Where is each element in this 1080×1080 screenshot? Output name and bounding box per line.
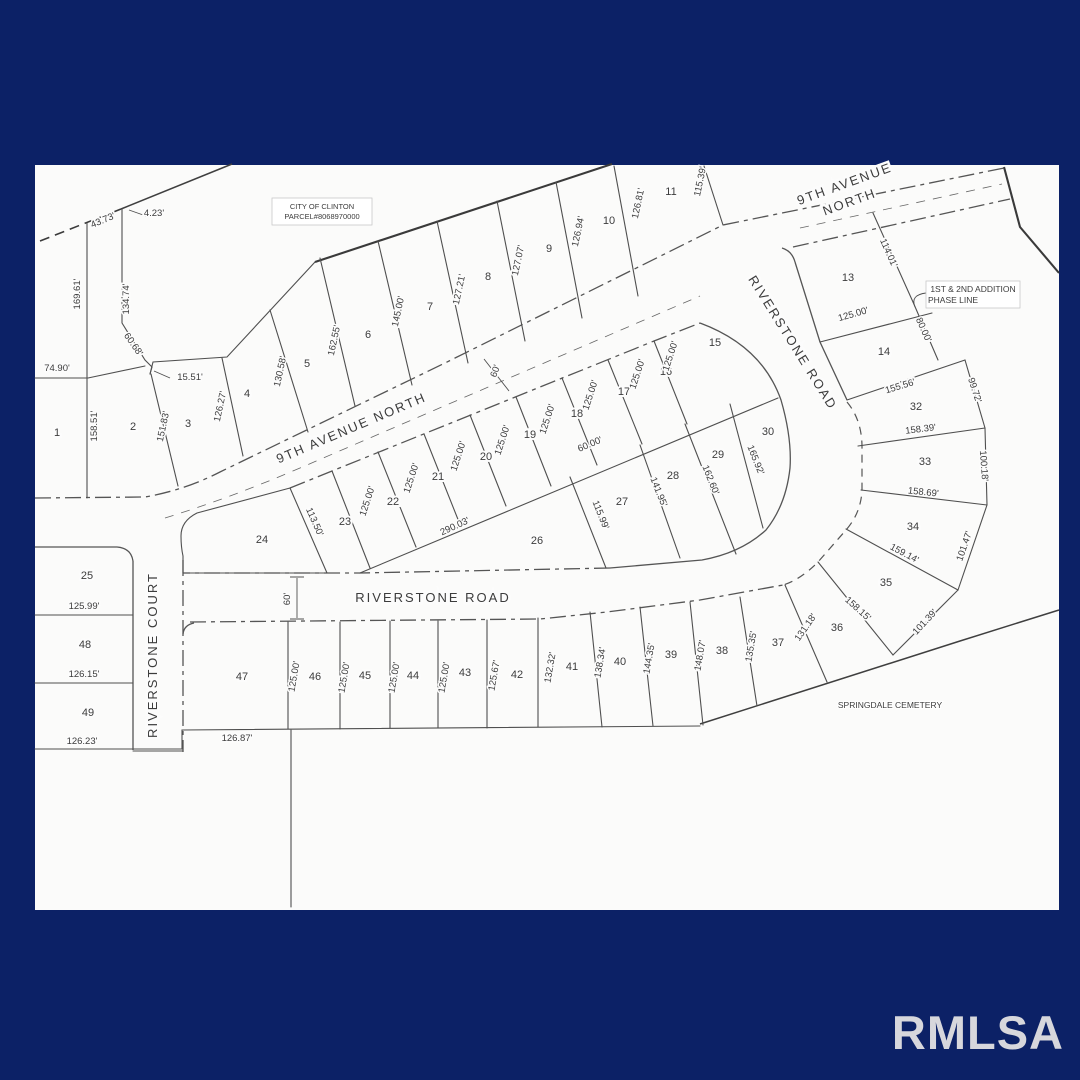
- lot-number-label: 10: [603, 215, 615, 227]
- dimension-label: 169.61': [72, 278, 83, 309]
- street-name-label: RIVERSTONE ROAD: [355, 590, 510, 605]
- lot-number-label: 37: [772, 637, 784, 649]
- lot-number-label: 32: [910, 401, 922, 413]
- screenshot-stage: 9TH AVENUE NORTH9TH AVENUENORTHRIVERSTON…: [0, 0, 1080, 1080]
- lot-number-label: 24: [256, 534, 268, 546]
- dimension-label: 60': [282, 593, 293, 606]
- lot-number-label: 43: [459, 667, 471, 679]
- dimension-label: 15.51': [177, 372, 203, 383]
- lot-number-label: 13: [842, 272, 854, 284]
- lot-number-label: 33: [919, 456, 931, 468]
- lot-number-label: 41: [566, 661, 578, 673]
- dimension-label: 74.90': [44, 363, 70, 374]
- dimension-label: 100.18': [977, 450, 990, 482]
- lot-number-label: 34: [907, 521, 919, 533]
- lot-number-label: 20: [480, 451, 492, 463]
- lot-number-label: 45: [359, 670, 371, 682]
- lot-number-label: 19: [524, 429, 536, 441]
- lot-number-label: 29: [712, 449, 724, 461]
- lot-number-label: 11: [665, 186, 676, 198]
- lot-number-label: 8: [485, 271, 491, 283]
- lot-number-label: 22: [387, 496, 399, 508]
- lot-number-label: 21: [432, 471, 444, 483]
- lot-number-label: 4: [244, 388, 250, 400]
- lot-number-label: 18: [571, 408, 583, 420]
- lot-number-label: 42: [511, 669, 523, 681]
- lot-number-label: 3: [185, 418, 191, 430]
- lot-number-label: 15: [709, 337, 721, 349]
- lot-number-label: 40: [614, 656, 626, 668]
- lot-number-label: 14: [878, 346, 890, 358]
- map-note-label: SPRINGDALE CEMETERY: [838, 700, 943, 710]
- lot-number-label: 5: [304, 358, 310, 370]
- lot-number-label: 30: [762, 426, 774, 438]
- dimension-label: 134.74': [121, 283, 132, 314]
- plat-svg: 9TH AVENUE NORTH9TH AVENUENORTHRIVERSTON…: [0, 0, 1080, 1080]
- lot-number-label: 49: [82, 707, 94, 719]
- map-note-label: PARCEL#8068970000: [284, 212, 359, 221]
- lot-number-label: 26: [531, 535, 543, 547]
- lot-number-label: 35: [880, 577, 892, 589]
- lot-number-label: 39: [665, 649, 677, 661]
- dimension-label: 158.51': [89, 410, 100, 441]
- street-name-label: RIVERSTONE COURT: [145, 572, 160, 738]
- map-note-label: CITY OF CLINTON: [290, 202, 354, 211]
- lot-number-label: 48: [79, 639, 91, 651]
- lot-number-label: 44: [407, 670, 419, 682]
- lot-number-label: 6: [365, 329, 371, 341]
- lot-number-label: 9: [546, 243, 552, 255]
- lot-number-label: 27: [616, 496, 628, 508]
- map-note-label: PHASE LINE: [928, 295, 978, 305]
- lot-number-label: 36: [831, 622, 843, 634]
- dimension-label: 126.87': [222, 733, 253, 744]
- lot-number-label: 7: [427, 301, 433, 313]
- lot-number-label: 2: [130, 421, 136, 433]
- lot-number-label: 23: [339, 516, 351, 528]
- dimension-label: 4.23': [144, 208, 164, 219]
- lot-number-label: 38: [716, 645, 728, 657]
- plat-map-background: [35, 165, 1059, 910]
- page: { "canvas": { "bg": "#0c2166", "map_bg":…: [0, 0, 1080, 1080]
- dimension-label: 126.23': [67, 736, 98, 747]
- lot-number-label: 1: [54, 427, 60, 439]
- lot-number-label: 47: [236, 671, 248, 683]
- rmlsa-watermark: RMLSA: [892, 1005, 1064, 1060]
- dimension-label: 126.15': [69, 669, 100, 680]
- map-note-label: 1ST & 2ND ADDITION: [930, 284, 1015, 294]
- lot-number-label: 25: [81, 570, 93, 582]
- dimension-label: 125.99': [69, 601, 100, 612]
- lot-number-label: 46: [309, 671, 321, 683]
- lot-number-label: 28: [667, 470, 679, 482]
